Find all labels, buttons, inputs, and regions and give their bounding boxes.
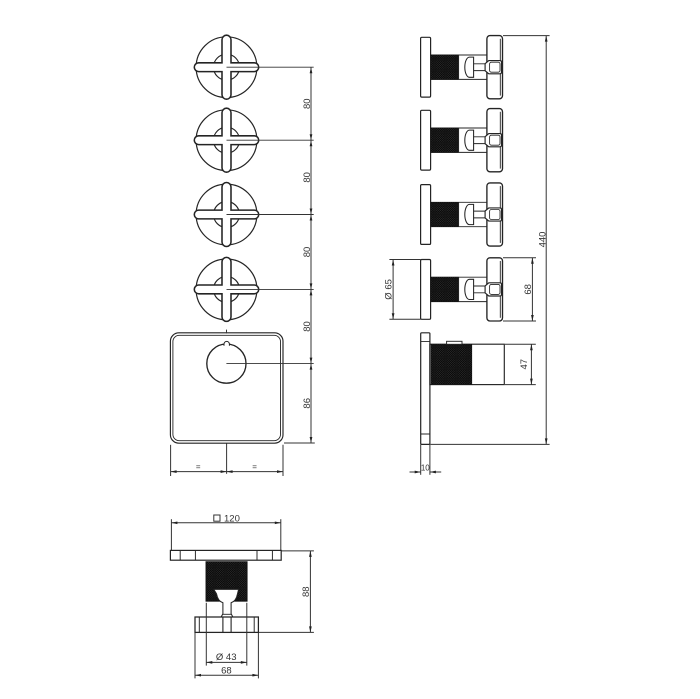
svg-text:440: 440 — [537, 232, 548, 248]
svg-text:68: 68 — [523, 284, 534, 295]
svg-text:68: 68 — [221, 666, 232, 677]
svg-text:86: 86 — [302, 398, 313, 409]
svg-text:47: 47 — [519, 359, 530, 370]
svg-text:80: 80 — [302, 247, 313, 258]
svg-text:80: 80 — [302, 172, 313, 183]
svg-text:=: = — [196, 462, 201, 471]
svg-text:=: = — [252, 462, 257, 471]
svg-text:Ø 65: Ø 65 — [384, 279, 395, 300]
svg-text:88: 88 — [301, 586, 312, 597]
svg-text:10: 10 — [421, 463, 430, 472]
svg-text:80: 80 — [302, 321, 313, 332]
svg-text:Ø 43: Ø 43 — [216, 652, 237, 663]
svg-text:80: 80 — [302, 98, 313, 109]
